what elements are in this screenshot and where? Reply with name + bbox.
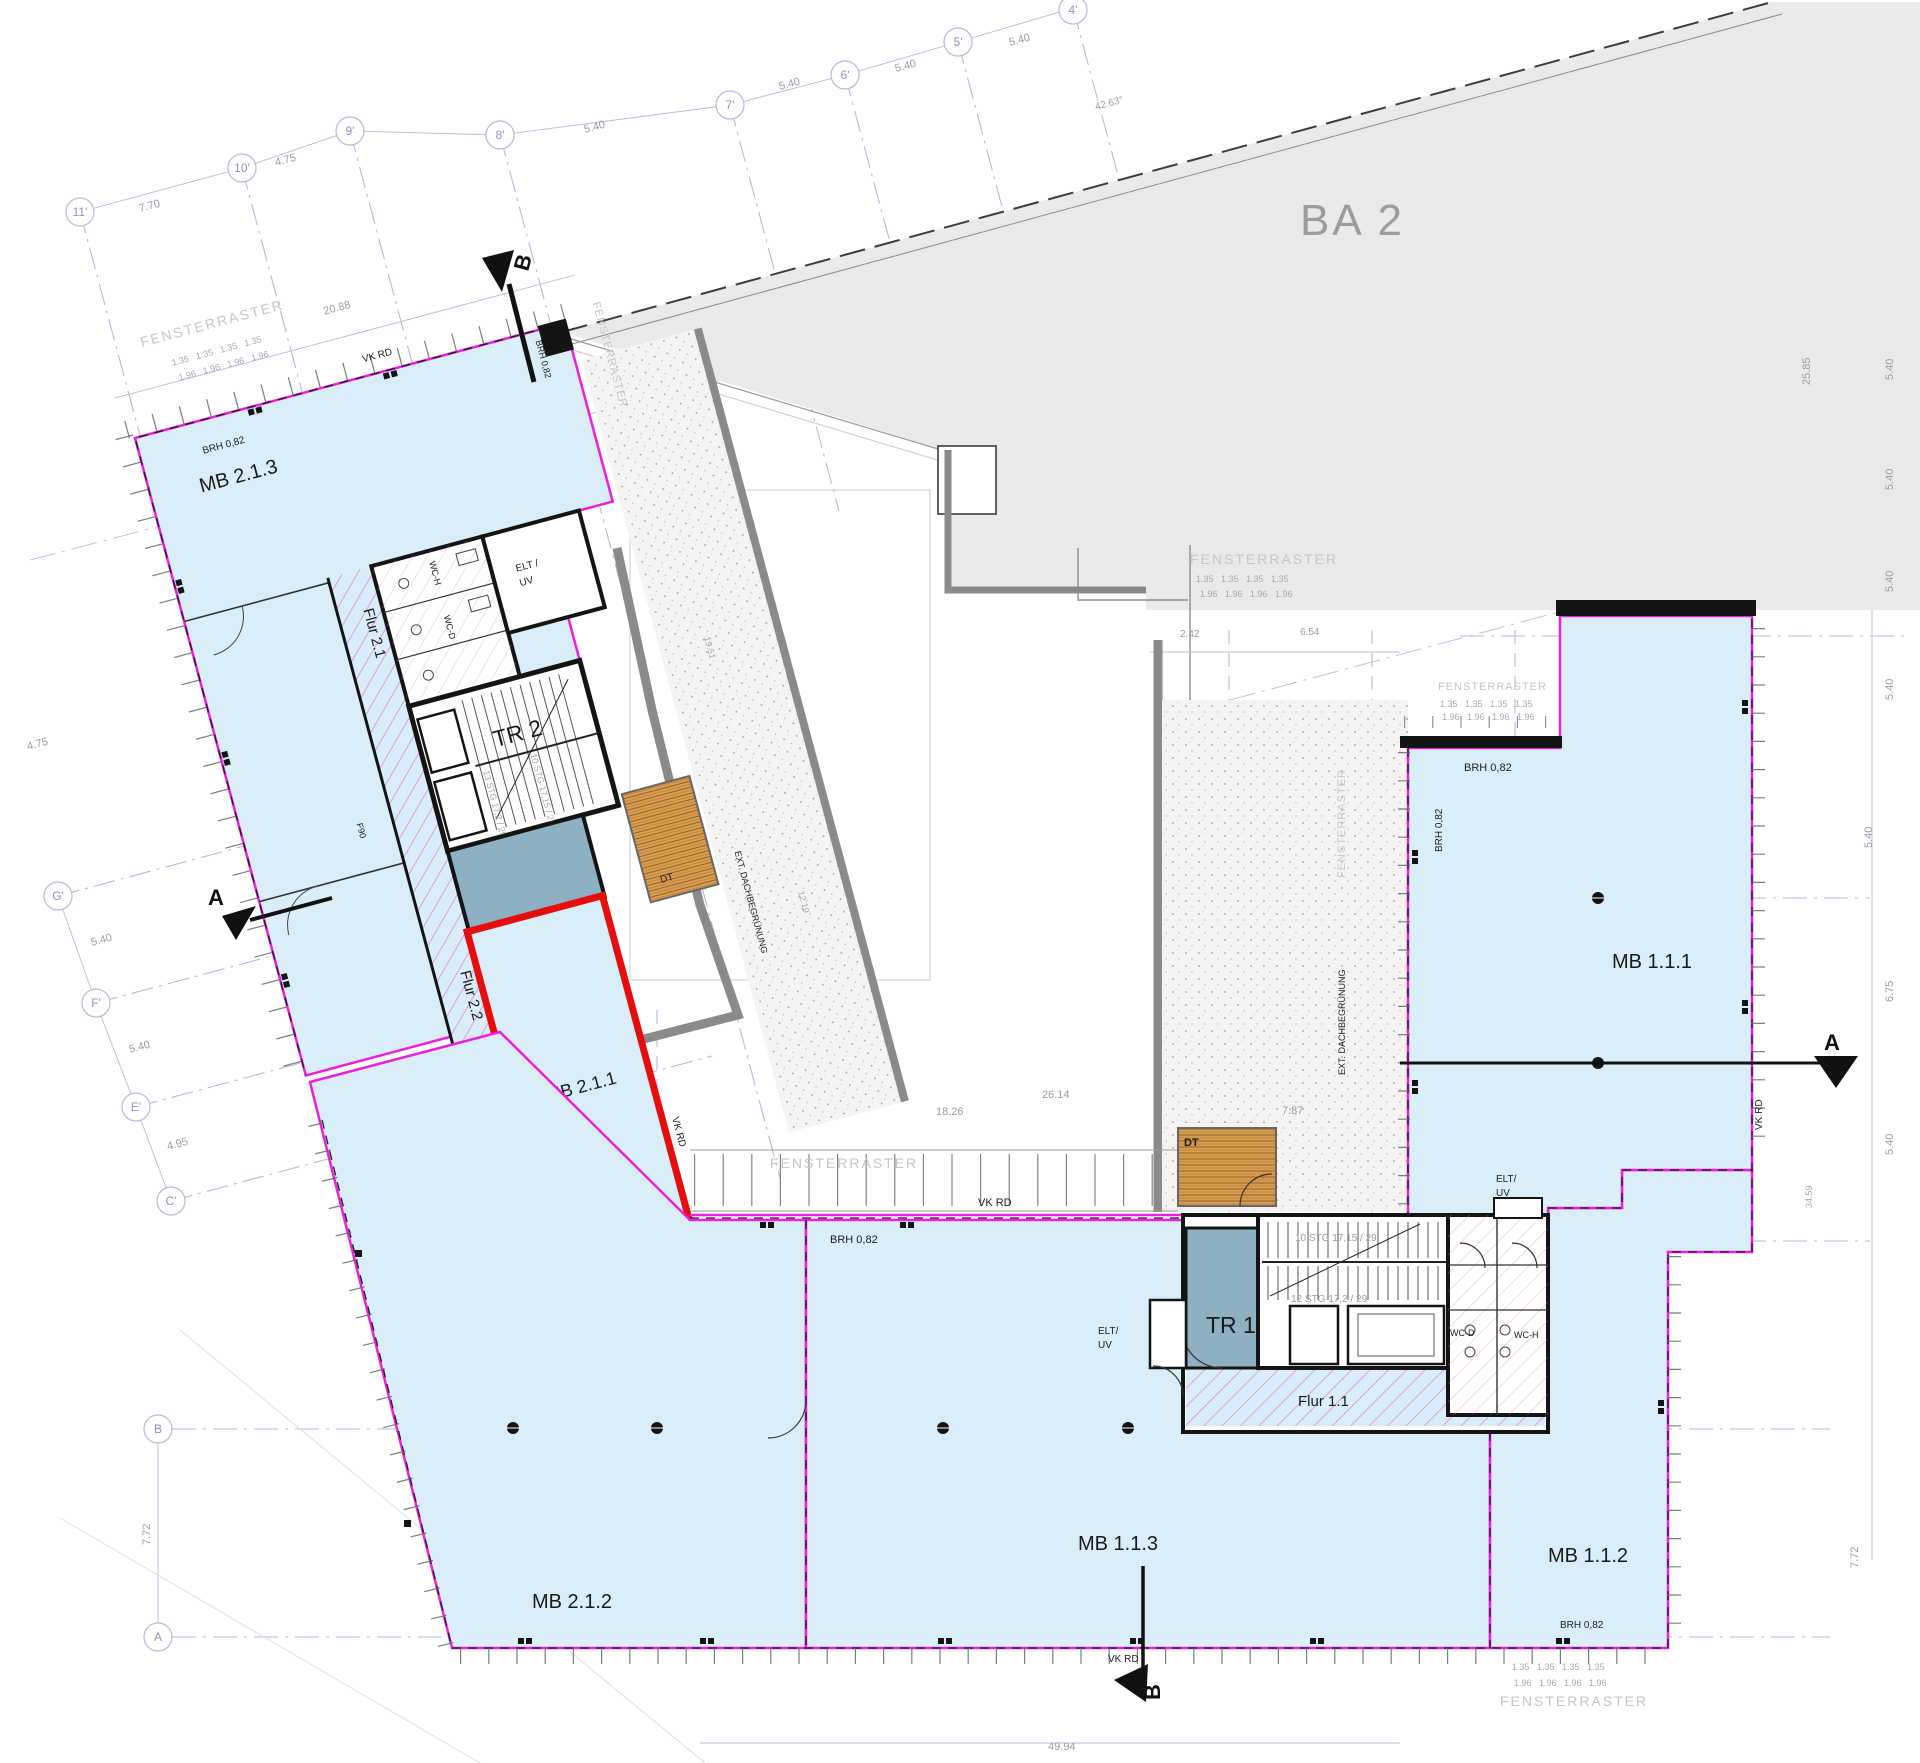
- vkrd-mid: VK RD: [978, 1197, 1012, 1209]
- dim-540-r3: 5.40: [1884, 571, 1896, 592]
- dim-1826: 18.26: [936, 1106, 964, 1118]
- dim-675: 6.75: [1884, 981, 1896, 1002]
- dim-540-b: 5.40: [778, 76, 802, 93]
- label-elt-mb111: ELT/: [1496, 1174, 1517, 1185]
- ba2-label: BA 2: [1300, 196, 1405, 245]
- grid-bubble-F: F': [82, 989, 110, 1017]
- grid-bubble-6: 6': [831, 61, 859, 89]
- svg-text:B: B: [154, 1422, 162, 1436]
- grid-bubble-5: 5': [944, 28, 972, 56]
- elt-room-west-tr1: [1150, 1300, 1186, 1368]
- brh-mb113: BRH 0,82: [830, 1234, 878, 1246]
- label-uv-tr1: UV: [1098, 1340, 1112, 1351]
- brh-mb111-vert: BRH 0,82: [1434, 808, 1445, 852]
- svg-text:A: A: [208, 885, 224, 910]
- fensterraster-mid: FENSTERRASTER: [770, 1155, 918, 1171]
- label-tr1: TR 1: [1206, 1312, 1256, 1338]
- dim-540-r5: 5.40: [1863, 827, 1875, 848]
- dim-787: 7.87: [1282, 1105, 1303, 1117]
- grid-bubble-7: 7': [716, 91, 744, 119]
- core-block-tr1: 10 STG 17,15 / 29 12 STG 17,2 / 29 TR 1 …: [1182, 1215, 1548, 1432]
- dim-772-left: 7.72: [141, 1524, 153, 1545]
- grid-bubble-G: G': [44, 882, 72, 910]
- floorplan-canvas: BA 2 FENSTERRASTER 1.35 1.35 1.35 1.35 1…: [0, 0, 1920, 1763]
- svg-text:F': F': [91, 996, 101, 1010]
- dim-495: 4.95: [166, 1136, 190, 1153]
- fensterraster-ba2: FENSTERRASTER: [1190, 551, 1338, 567]
- dim-540-r4: 5.40: [1884, 679, 1896, 700]
- vestibule-tr1: [1186, 1228, 1258, 1368]
- label-wcd: WC-D: [1450, 1328, 1475, 1338]
- grid-bubble-4: 4': [1059, 0, 1087, 24]
- svg-text:7': 7': [726, 98, 735, 112]
- grid-bubble-8: 8': [486, 121, 514, 149]
- dim-770: 7.70: [138, 198, 162, 215]
- dim-654: 6.54: [1300, 627, 1320, 638]
- brh-mb112: BRH 0,82: [1560, 1620, 1604, 1631]
- stair12-text-tr1: 12 STG 17,2 / 29: [1291, 1294, 1368, 1305]
- svg-text:B: B: [1140, 1684, 1165, 1700]
- fensterraster-south: FENSTERRASTER: [1500, 1693, 1648, 1709]
- svg-text:4': 4': [1069, 3, 1078, 17]
- dim-540-c: 5.40: [894, 58, 918, 75]
- vkrd-wing: VK RD: [361, 347, 393, 366]
- dim-242: 2.42: [1180, 629, 1200, 640]
- dim-135-south: 1.35 1.35 1.35 1.35: [1512, 1662, 1605, 1672]
- svg-text:8': 8': [496, 128, 505, 142]
- fensterraster-wing: FENSTERRASTER: [138, 296, 285, 350]
- dim-540-r6: 5.40: [1884, 1134, 1896, 1155]
- dim-475-top: 4.75: [274, 152, 298, 169]
- label-wch: WC-H: [1514, 1330, 1539, 1340]
- svg-text:9': 9': [346, 124, 355, 138]
- dim-540-r1: 5.40: [1884, 359, 1896, 380]
- label-dt-east: DT: [1184, 1137, 1199, 1149]
- label-flur11: Flur 1.1: [1298, 1393, 1349, 1410]
- floorplan-drawing: BA 2 FENSTERRASTER 1.35 1.35 1.35 1.35 1…: [0, 0, 1920, 1763]
- label-mb212: MB 2.1.2: [532, 1591, 612, 1613]
- dim-135-ba2: 1.35 1.35 1.35 1.35: [1196, 574, 1289, 584]
- svg-text:C': C': [166, 1194, 177, 1208]
- dim-2614: 26.14: [1042, 1089, 1070, 1101]
- dim-4263: 42.63°: [1094, 95, 1125, 113]
- vkrd-east: VK RD: [1754, 1099, 1765, 1130]
- dim-540-left1: 5.40: [90, 932, 114, 949]
- dim-540-r2: 5.40: [1884, 469, 1896, 490]
- svg-text:A: A: [154, 1630, 162, 1644]
- fensterraster-vert: FENSTERRASTER: [1336, 769, 1348, 878]
- grid-bubble-B: B: [144, 1415, 172, 1443]
- svg-text:G': G': [52, 889, 64, 903]
- grid-bubble-E: E': [122, 1093, 150, 1121]
- svg-text:6': 6': [841, 68, 850, 82]
- dim-772-right: 7.72: [1849, 1547, 1861, 1568]
- fensterraster-mb111: FENSTERRASTER: [1438, 681, 1547, 693]
- grid-bubble-C: C': [157, 1187, 185, 1215]
- brh-mb111: BRH 0,82: [1464, 762, 1512, 774]
- grid-bubble-A: A: [144, 1623, 172, 1651]
- label-mb113: MB 1.1.3: [1078, 1533, 1158, 1555]
- svg-text:E': E': [131, 1100, 141, 1114]
- svg-text:11': 11': [73, 205, 88, 219]
- extdach-east: EXT. DACHBEGRÜNUNG: [1337, 969, 1347, 1075]
- svg-text:10': 10': [234, 161, 250, 175]
- ba2-polygon: [562, 2, 1920, 610]
- label-uv-mb111: UV: [1496, 1188, 1510, 1199]
- dim-3459: 34.59: [1804, 1185, 1814, 1208]
- label-mb111: MB 1.1.1: [1612, 951, 1692, 973]
- wall-mb111-north: [1556, 600, 1756, 616]
- dim-4994: 49.94: [1048, 1741, 1076, 1753]
- dim-540-a: 5.40: [583, 119, 607, 136]
- grid-bubble-11: 11': [66, 198, 94, 226]
- dim-2088: 20.88: [322, 299, 352, 318]
- dim-475-left: 4.75: [26, 736, 50, 753]
- dim-540-d: 5.40: [1008, 32, 1032, 49]
- wall-mb111-northwest: [1400, 736, 1562, 748]
- dim-196-mb111: 1.96 1.96 1.96 1.96: [1442, 712, 1535, 722]
- dim-540-left2: 5.40: [128, 1039, 152, 1056]
- room-mb212: [310, 1032, 806, 1648]
- stair10-text-tr1: 10 STG 17,15 / 29: [1295, 1233, 1377, 1244]
- svg-text:5': 5': [954, 35, 963, 49]
- vkrd-south: VK RD: [1108, 1654, 1139, 1665]
- elt-room-mb111: [1494, 1198, 1542, 1218]
- label-mb112: MB 1.1.2: [1548, 1545, 1628, 1567]
- grid-bubble-10: 10': [228, 154, 256, 182]
- label-elt-tr1: ELT/: [1098, 1326, 1119, 1337]
- ba2-area: BA 2 FENSTERRASTER 1.35 1.35 1.35 1.35 1…: [562, 2, 1920, 610]
- svg-text:A: A: [1824, 1030, 1840, 1055]
- dim-196-ba2: 1.96 1.96 1.96 1.96: [1200, 589, 1293, 599]
- dim-196-south: 1.96 1.96 1.96 1.96: [1514, 1678, 1607, 1688]
- grid-bubble-9: 9': [336, 117, 364, 145]
- dim-135-mb111: 1.35 1.35 1.35 1.35: [1440, 699, 1533, 709]
- dim-2585: 25.85: [1801, 357, 1813, 385]
